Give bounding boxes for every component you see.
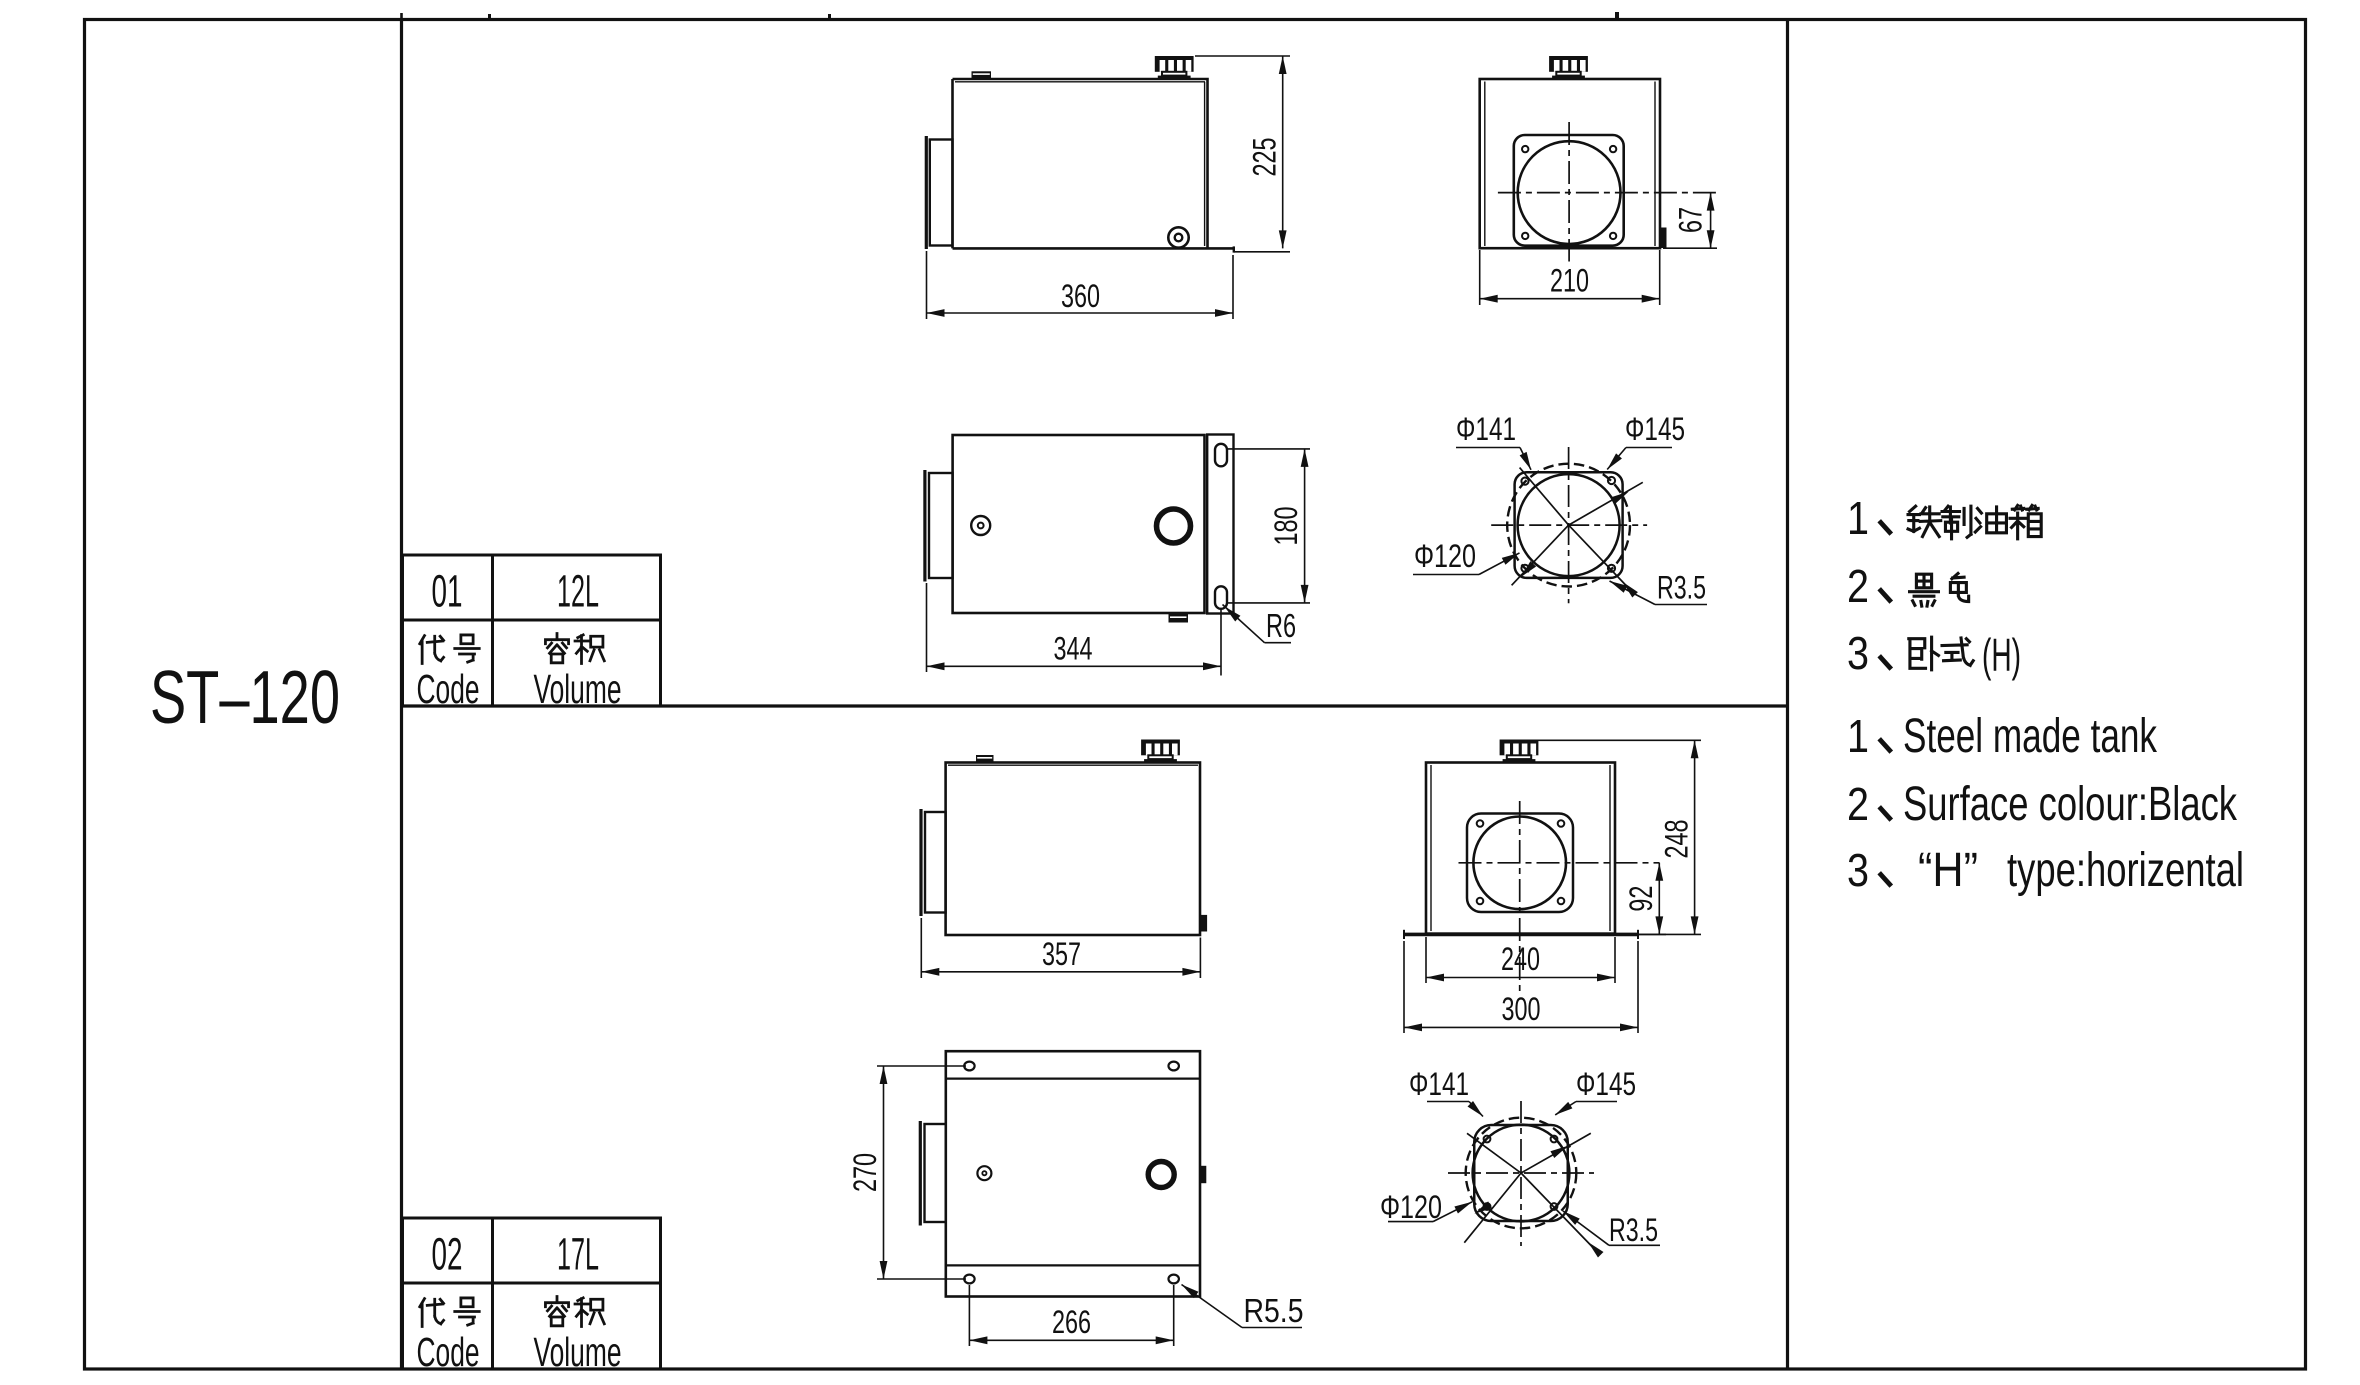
svg-text:2: 2 <box>1847 778 1869 830</box>
svg-text:01: 01 <box>432 566 463 617</box>
svg-text:Φ120: Φ120 <box>1380 1189 1442 1225</box>
svg-text:R3.5: R3.5 <box>1657 570 1706 606</box>
svg-text:266: 266 <box>1052 1304 1091 1340</box>
svg-text:360: 360 <box>1061 278 1100 314</box>
svg-text:3: 3 <box>1847 844 1869 896</box>
svg-text:Volume: Volume <box>534 1329 622 1375</box>
svg-text:67: 67 <box>1673 207 1709 233</box>
svg-text:Φ141: Φ141 <box>1456 411 1516 447</box>
svg-text:300: 300 <box>1502 991 1541 1027</box>
svg-text:R6: R6 <box>1266 607 1296 644</box>
svg-text:R5.5: R5.5 <box>1244 1292 1304 1329</box>
svg-text:12L: 12L <box>557 566 599 617</box>
svg-text:ST–120: ST–120 <box>150 655 340 739</box>
svg-text:(H): (H) <box>1982 629 2021 681</box>
svg-text:248: 248 <box>1659 820 1695 859</box>
svg-text:“H”: “H” <box>1918 844 1978 897</box>
svg-text:R3.5: R3.5 <box>1609 1212 1658 1248</box>
svg-text:Φ141: Φ141 <box>1409 1066 1469 1102</box>
svg-text:Steel made tank: Steel made tank <box>1903 710 2158 763</box>
svg-text:Volume: Volume <box>534 666 622 712</box>
svg-text:1: 1 <box>1847 710 1869 762</box>
svg-text:type:horizental: type:horizental <box>2007 844 2244 897</box>
svg-text:Φ145: Φ145 <box>1576 1066 1636 1102</box>
svg-text:92: 92 <box>1623 886 1659 912</box>
svg-text:225: 225 <box>1247 138 1283 177</box>
svg-text:Code: Code <box>417 1329 480 1375</box>
svg-text:Φ145: Φ145 <box>1625 411 1685 447</box>
svg-text:02: 02 <box>432 1229 463 1280</box>
svg-text:180: 180 <box>1268 507 1304 546</box>
svg-text:344: 344 <box>1054 630 1093 666</box>
svg-text:Code: Code <box>417 666 480 712</box>
svg-text:270: 270 <box>847 1153 883 1192</box>
svg-text:210: 210 <box>1550 263 1589 299</box>
svg-text:2: 2 <box>1847 560 1869 612</box>
svg-text:1: 1 <box>1847 492 1869 544</box>
svg-text:Φ120: Φ120 <box>1414 538 1476 574</box>
svg-text:3: 3 <box>1847 627 1869 679</box>
svg-text:Surface colour:Black: Surface colour:Black <box>1903 778 2238 831</box>
svg-text:240: 240 <box>1501 941 1540 977</box>
svg-text:17L: 17L <box>557 1229 599 1280</box>
svg-text:357: 357 <box>1042 936 1081 972</box>
